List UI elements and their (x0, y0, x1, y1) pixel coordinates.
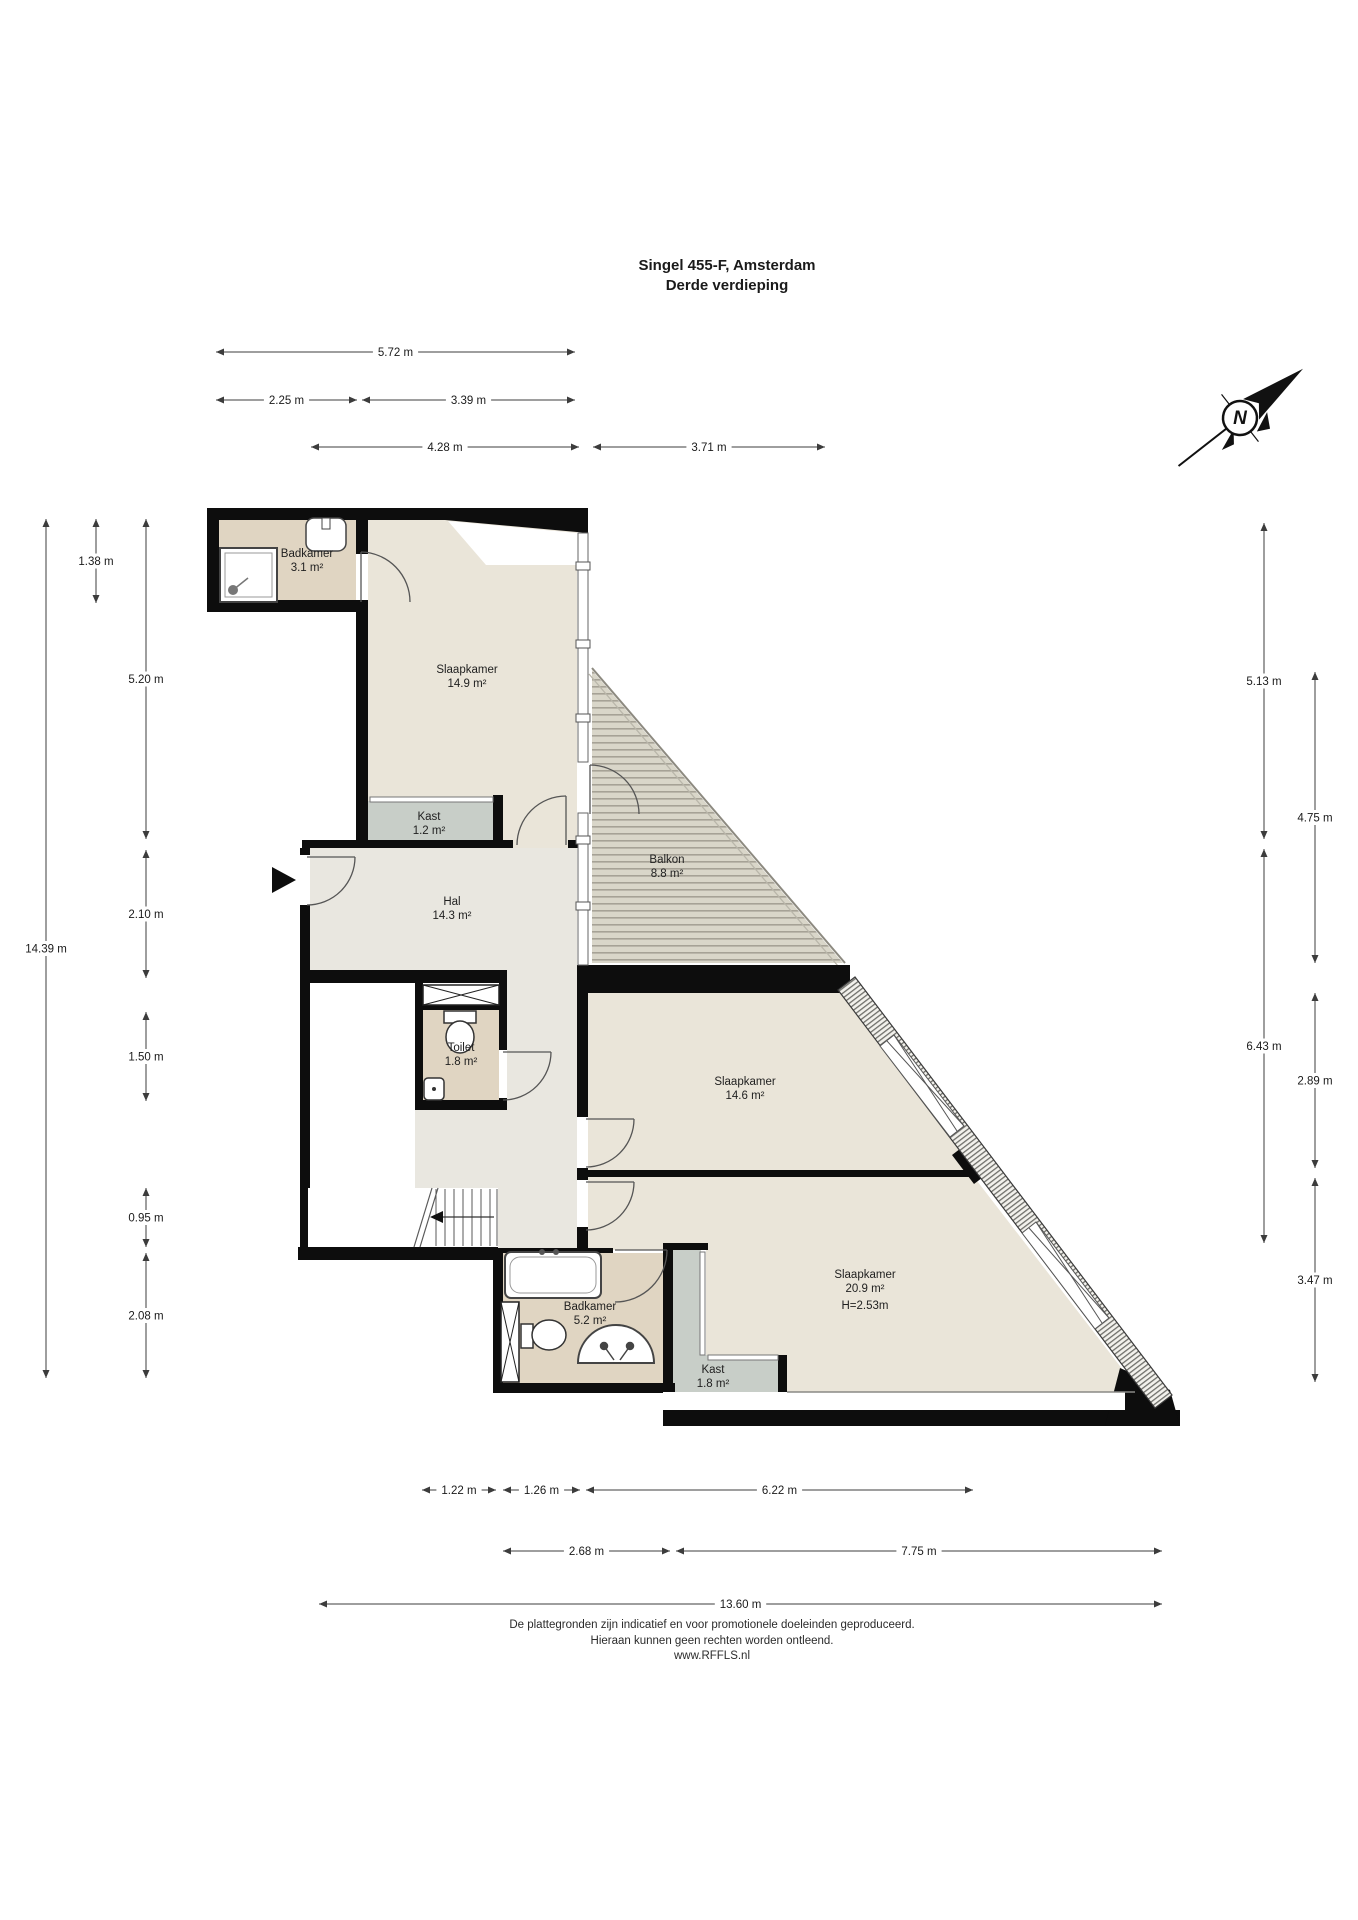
dimension-label: 13.60 m (720, 1599, 762, 1611)
dimension-label: 2.89 m (1297, 1076, 1332, 1088)
dimension: 3.47 m (1292, 1178, 1337, 1382)
floorplan-page: { "title": { "line1": "Singel 455-F, Ams… (0, 0, 1358, 1920)
room-label-text: Slaapkamer (714, 1076, 776, 1088)
dimension: 5.72 m (216, 345, 575, 360)
glass-wall (576, 533, 590, 965)
dimension-label: 2.10 m (128, 909, 163, 921)
closet-sliding-door (370, 797, 493, 802)
wall-void-top (300, 970, 507, 983)
room-label-text: 1.8 m² (445, 1056, 478, 1068)
dimension: 5.13 m (1241, 523, 1286, 839)
room-label-text: Balkon (649, 854, 684, 866)
dimension-label: 1.38 m (78, 556, 113, 568)
closet-sliding-door-2 (700, 1252, 705, 1355)
room-label-text: 1.8 m² (697, 1378, 730, 1390)
balcony-decking (592, 670, 843, 963)
toilet-cistern-2 (521, 1324, 533, 1348)
dimension: 1.38 m (73, 519, 118, 603)
staircase (308, 1188, 498, 1247)
disclaimer-line2: Hieraan kunnen geen rechten worden ontle… (509, 1634, 914, 1650)
dimension-label: 2.68 m (569, 1546, 604, 1558)
dimension-label: 1.26 m (524, 1485, 559, 1497)
room-label-text: 14.6 m² (726, 1090, 765, 1102)
dimension-label: 2.08 m (128, 1311, 163, 1323)
room-label-text: H=2.53m (842, 1300, 889, 1312)
room-label-text: 5.2 m² (574, 1315, 607, 1327)
dimension: 5.20 m (123, 519, 168, 839)
dimension: 4.28 m (311, 440, 579, 455)
room-label-text: Badkamer (564, 1301, 617, 1313)
dimension-label: 1.50 m (128, 1052, 163, 1064)
wall-badkamer52-bottom (493, 1383, 675, 1393)
compass-icon: N (1160, 345, 1321, 490)
dimension-label: 5.20 m (128, 674, 163, 686)
dimension: 1.50 m (123, 1012, 168, 1101)
wall-hal-top (302, 840, 513, 848)
dimension: 0.95 m (123, 1188, 168, 1247)
dimension-label: 0.95 m (128, 1213, 163, 1225)
wall-stairs-bottom (298, 1247, 498, 1260)
room-label-text: 8.8 m² (651, 868, 684, 880)
dimension: 7.75 m (676, 1544, 1162, 1559)
dimension: 3.71 m (593, 440, 825, 455)
dimension: 4.75 m (1292, 672, 1337, 963)
wall-slaapkamer146-left (577, 993, 588, 1117)
dimension-label: 3.39 m (451, 395, 486, 407)
bathtub (505, 1252, 601, 1298)
dimension-label: 4.75 m (1297, 813, 1332, 825)
dimension: 6.22 m (586, 1483, 973, 1498)
dimension-label: 1.22 m (441, 1485, 476, 1497)
compass-north-label: N (1233, 408, 1248, 429)
dimension: 2.08 m (123, 1253, 168, 1378)
dimension: 2.25 m (216, 393, 357, 408)
toilet-bowl-2 (532, 1320, 566, 1350)
disclaimer: De plattegronden zijn indicatief en voor… (509, 1618, 914, 1665)
dimension-label: 7.75 m (901, 1546, 936, 1558)
dimension-label: 5.72 m (378, 347, 413, 359)
dimension: 3.39 m (362, 393, 575, 408)
dimension: 1.26 m (503, 1483, 580, 1498)
dimension-label: 6.43 m (1246, 1041, 1281, 1053)
room-label-text: Kast (701, 1364, 725, 1376)
wall-toilet-left (415, 983, 423, 1110)
room-label-text: Toilet (448, 1042, 476, 1054)
balcony (589, 668, 845, 966)
dimension: 14.39 m (20, 519, 71, 1378)
dimension-label: 6.22 m (762, 1485, 797, 1497)
room-label-text: 14.3 m² (433, 910, 472, 922)
dimension-label: 3.71 m (691, 442, 726, 454)
wall-bedroom-divider (583, 1170, 973, 1177)
room-label-text: Slaapkamer (834, 1269, 896, 1281)
dimension: 1.22 m (422, 1483, 496, 1498)
dimension-label: 14.39 m (25, 944, 67, 956)
dimension: 13.60 m (319, 1597, 1162, 1612)
dimension-label: 2.25 m (269, 395, 304, 407)
room-label-text: 14.9 m² (448, 678, 487, 690)
room-label-text: Slaapkamer (436, 664, 498, 676)
room-label-text: 3.1 m² (291, 562, 324, 574)
entrance-arrow (272, 867, 296, 893)
dimension: 2.89 m (1292, 993, 1337, 1168)
wall-badkamer31-left (207, 508, 219, 612)
dimension-label: 4.28 m (427, 442, 462, 454)
room-label-text: 1.2 m² (413, 825, 446, 837)
wall-toilet-bottom (415, 1100, 507, 1110)
dimension: 6.43 m (1241, 849, 1286, 1243)
dimension: 2.68 m (503, 1544, 670, 1559)
shower-tray (220, 548, 277, 602)
dimension: 2.10 m (123, 850, 168, 978)
dimension-label: 3.47 m (1297, 1275, 1332, 1287)
room-label-text: Badkamer (281, 548, 334, 560)
disclaimer-line1: De plattegronden zijn indicatief en voor… (509, 1618, 914, 1634)
wall-bottom (663, 1410, 1180, 1426)
wall-balcony-bottom (577, 965, 850, 993)
room-label-text: Kast (417, 811, 441, 823)
room-label-text: Hal (443, 896, 460, 908)
disclaimer-url: www.RFFLS.nl (509, 1649, 914, 1665)
wall-slaapkamer149-left (356, 612, 368, 802)
room-label-text: 20.9 m² (846, 1283, 885, 1295)
dimension-label: 5.13 m (1246, 676, 1281, 688)
window-sill-bottom (663, 1392, 1125, 1410)
